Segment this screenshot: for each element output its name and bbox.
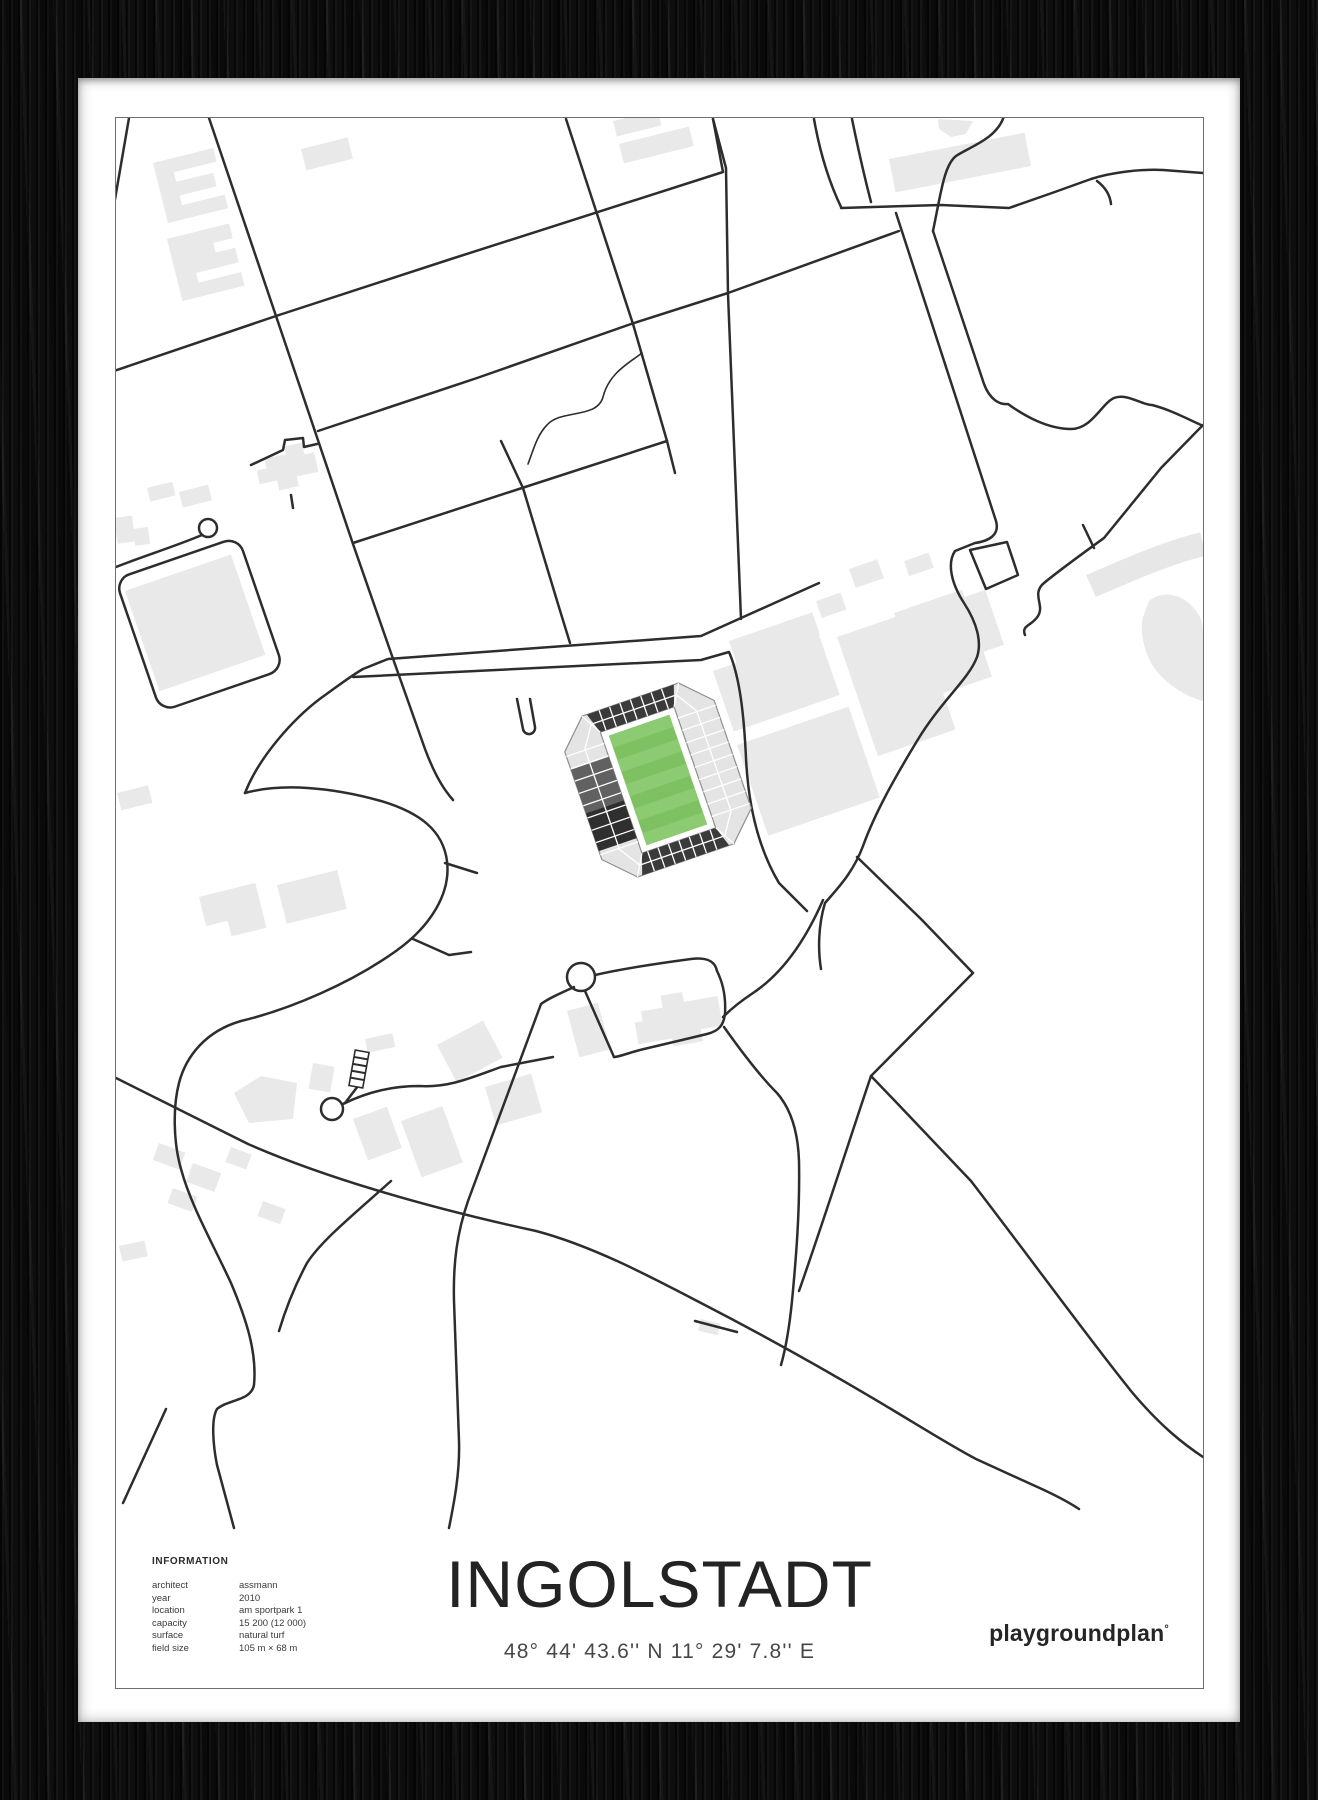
poster-artwork: INFORMATION architect assmann year 2010 …: [115, 117, 1204, 1689]
brand-logo: playgroundplan°: [989, 1620, 1169, 1647]
framed-map-poster: INFORMATION architect assmann year 2010 …: [0, 0, 1318, 1800]
street-map: [116, 118, 1203, 1688]
city-title: INGOLSTADT: [116, 1546, 1203, 1622]
creek-line: [528, 353, 642, 464]
white-matte: INFORMATION architect assmann year 2010 …: [78, 78, 1240, 1722]
brand-degree-mark: °: [1164, 1623, 1169, 1635]
bridge-symbol: [349, 1050, 369, 1088]
